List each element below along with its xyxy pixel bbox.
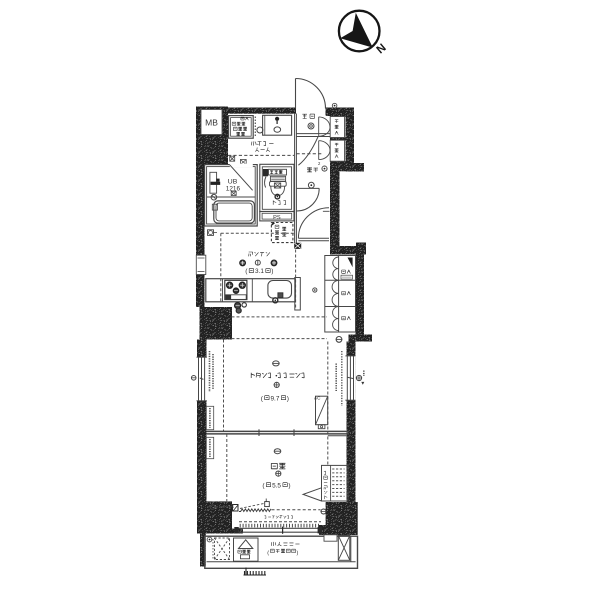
svg-text:): ) bbox=[288, 482, 290, 489]
svg-text:UB: UB bbox=[228, 179, 238, 186]
svg-text:5.5: 5.5 bbox=[272, 482, 281, 489]
svg-text:): ) bbox=[287, 395, 289, 402]
svg-text:): ) bbox=[297, 551, 299, 557]
svg-text:3.1: 3.1 bbox=[255, 268, 264, 275]
svg-text:25: 25 bbox=[231, 504, 235, 508]
svg-text:(: ( bbox=[267, 551, 269, 557]
svg-text:): ) bbox=[271, 268, 273, 275]
svg-text:PS: PS bbox=[273, 215, 281, 221]
svg-text:MB: MB bbox=[205, 118, 218, 128]
svg-text:AC: AC bbox=[314, 395, 321, 400]
svg-text:9.7: 9.7 bbox=[271, 395, 280, 402]
